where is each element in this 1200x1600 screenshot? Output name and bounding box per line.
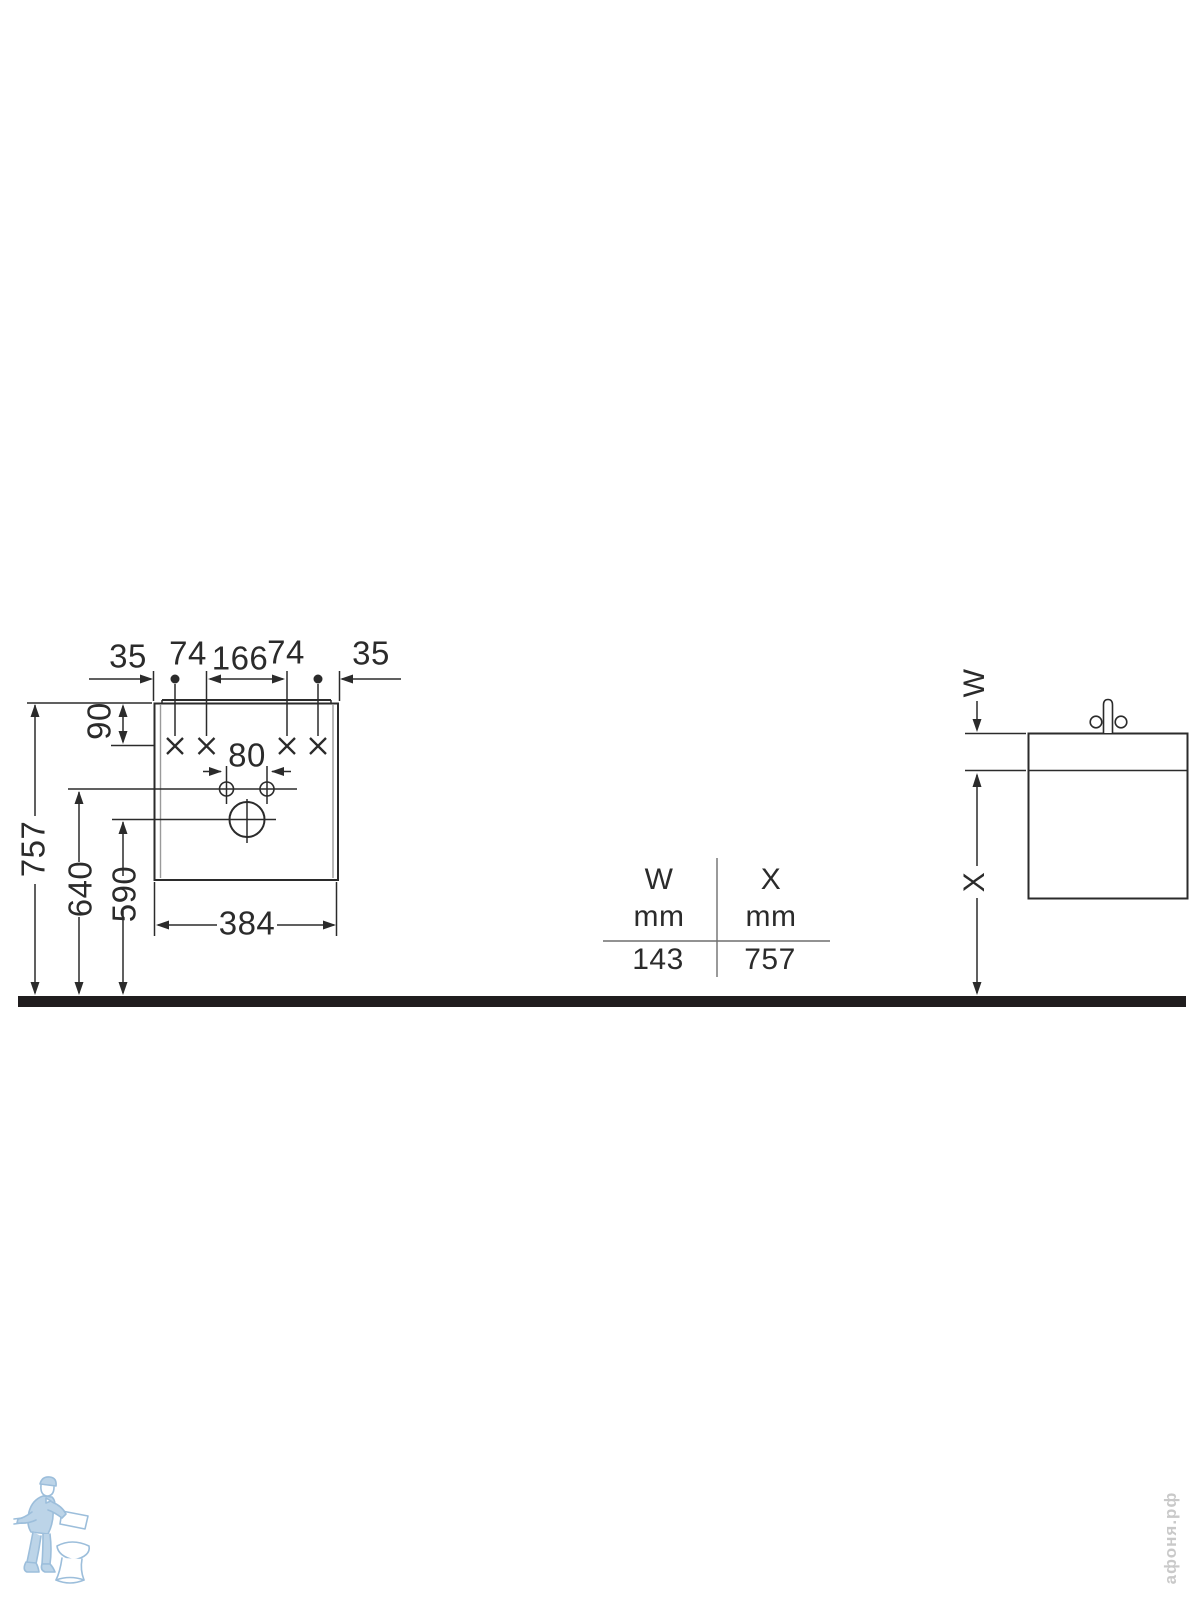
side-view-dimensions <box>965 701 1026 995</box>
dim-757-label: 757 <box>17 821 50 878</box>
side-dim-x-label: X <box>960 872 990 893</box>
dim-640-label: 640 <box>64 861 97 918</box>
table-unit-x: mm <box>746 902 797 932</box>
site-watermark-text: афоня.рф <box>1161 1482 1183 1594</box>
dim-80-label: 80 <box>228 739 266 772</box>
dim-35-right-label: 35 <box>352 637 390 670</box>
dimension-drawing <box>0 0 1200 1600</box>
dim-35-left-label: 35 <box>109 640 147 673</box>
faucet-icon <box>1090 700 1127 734</box>
side-dim-w-label: W <box>960 669 990 698</box>
plumber-with-toilet-logo-icon <box>14 1477 89 1583</box>
table-unit-w: mm <box>634 902 685 932</box>
table-header-w: W <box>645 865 674 895</box>
table-header-x: X <box>761 865 782 895</box>
floor-line <box>18 996 1186 1007</box>
table-value-w: 143 <box>632 945 684 975</box>
side-view-cabinet <box>1029 700 1188 899</box>
dim-90-label: 90 <box>83 702 116 740</box>
dim-74-right-label: 74 <box>267 636 305 669</box>
technical-drawing-page: 35 74 166 74 35 90 80 757 640 590 384 W … <box>0 0 1200 1600</box>
dim-74-left-label: 74 <box>169 637 207 670</box>
dim-384-label: 384 <box>219 907 276 940</box>
dim-590-label: 590 <box>108 866 141 923</box>
dim-166-label: 166 <box>212 642 269 675</box>
table-value-x: 757 <box>744 945 796 975</box>
